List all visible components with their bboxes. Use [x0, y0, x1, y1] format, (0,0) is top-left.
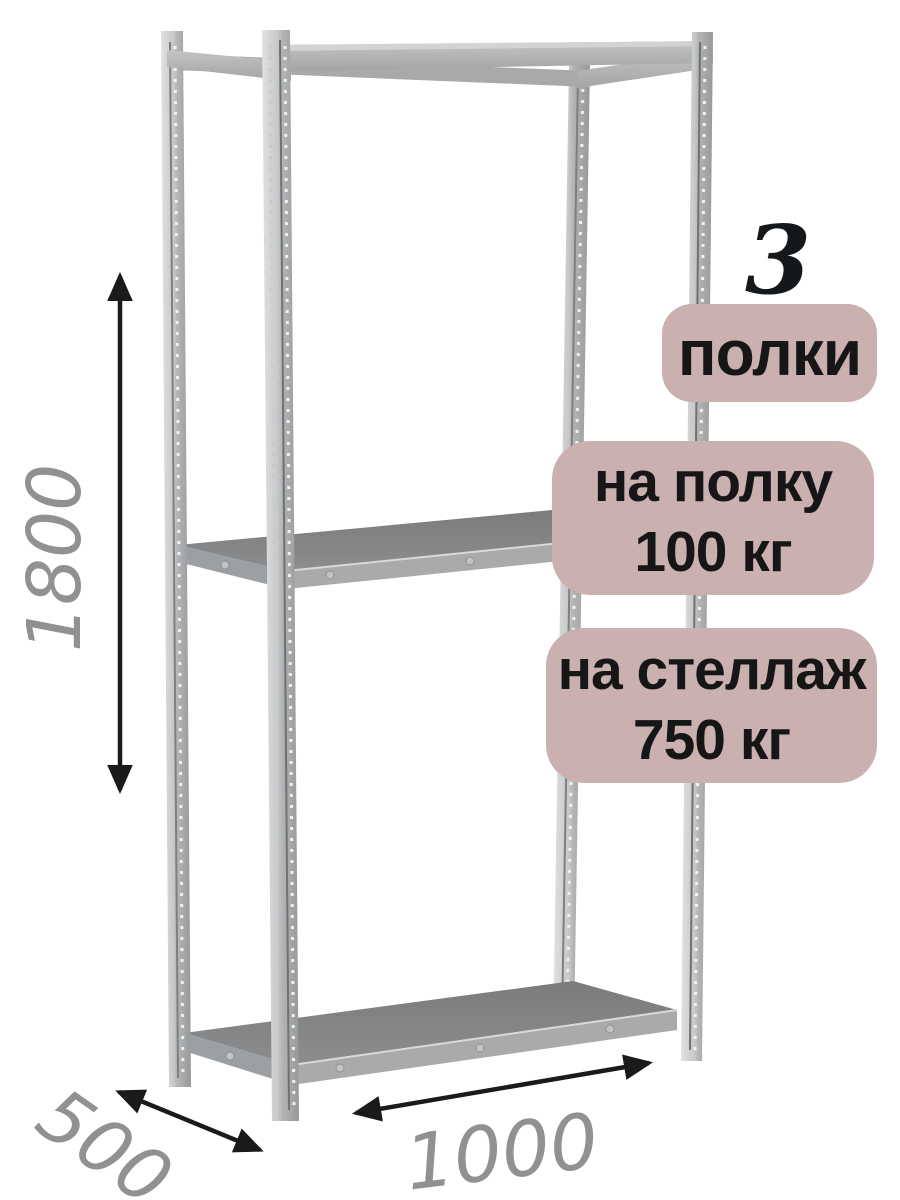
per-rack-load-line2: 750 кг [633, 706, 790, 776]
per-rack-load-line1: на стеллаж [558, 636, 866, 706]
shelf-count-label: полки [678, 316, 861, 390]
per-rack-load-badge: на стеллаж 750 кг [546, 628, 877, 783]
depth-dimension-label: 500 [22, 1072, 187, 1200]
width-dimension-label: 1000 [400, 1096, 603, 1200]
depth-dimension: 500 [22, 1072, 260, 1200]
bolt [221, 561, 229, 569]
per-shelf-load-badge: на полку 100 кг [552, 441, 874, 595]
product-image: 1800 500 1000 3 полки на полку 100 кг на… [0, 0, 900, 1200]
bolt [476, 1044, 484, 1052]
shelf-count-number: 3 [713, 206, 843, 316]
bolt [466, 557, 474, 565]
width-dimension: 1000 [356, 1063, 649, 1200]
shelf-count-badge: полки [662, 304, 877, 402]
bolt [226, 1052, 234, 1060]
rack-diagram: 1800 500 1000 [0, 0, 900, 1200]
height-dimension: 1800 [12, 276, 120, 790]
height-dimension-label: 1800 [12, 464, 98, 652]
width-arrow [356, 1063, 649, 1113]
per-shelf-load-line1: на полку [594, 448, 832, 518]
bolt [326, 571, 334, 579]
bolt [606, 1025, 614, 1033]
per-shelf-load-line2: 100 кг [634, 518, 791, 588]
bolt [336, 1064, 344, 1072]
